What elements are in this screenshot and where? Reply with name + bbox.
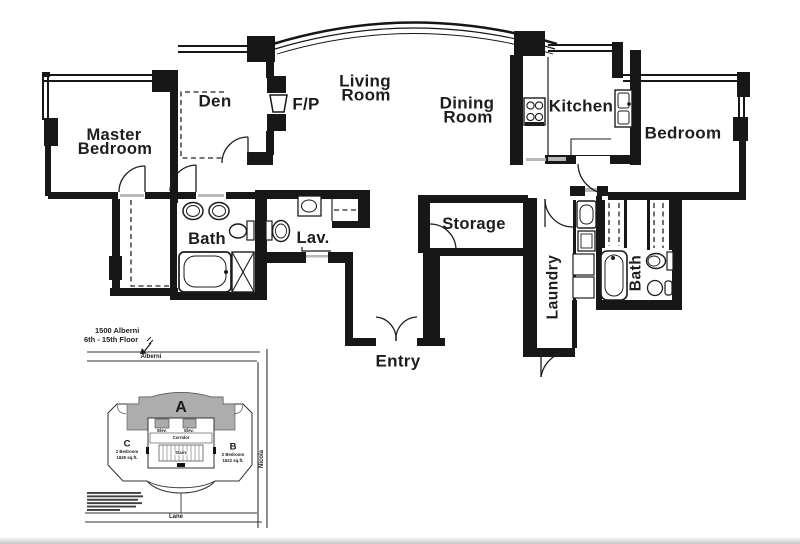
label-bedroom: Bedroom <box>645 125 722 142</box>
site-address-line2: 6th - 15th Floor <box>84 336 138 344</box>
page-edge-shadow <box>0 537 800 544</box>
label-dining-room-2: Room <box>443 109 492 126</box>
street-label-alberni: Alberni <box>139 354 164 360</box>
label-laundry: Laundry <box>545 255 561 320</box>
elevator-box-1 <box>155 419 169 428</box>
laundry-fixtures <box>573 201 596 298</box>
site-stairs-label: Stairs <box>174 451 188 455</box>
label-storage: Storage <box>442 216 506 233</box>
label-kitchen: Kitchen <box>549 98 613 115</box>
site-unit-c-label: C <box>124 439 131 449</box>
site-unit-c-area: 1626 sq.ft. <box>116 455 137 459</box>
floor-plan-sheet: Master Bedroom Den F/P Living Room Dinin… <box>0 0 800 544</box>
site-unit-b-area: 1622 sq.ft. <box>222 458 243 462</box>
fireplace-icon <box>270 95 287 112</box>
street-label-lane: Lane <box>167 514 185 520</box>
label-master-bedroom-2: Bedroom <box>78 141 153 158</box>
label-bath-right: Bath <box>628 255 644 291</box>
site-elev2-label: Elev. <box>184 429 193 433</box>
street-label-nicola: Nicola <box>259 448 265 470</box>
kitchen-door-gap <box>576 156 610 164</box>
site-corridor-label: Corridor <box>173 436 190 440</box>
elevator-box-2 <box>183 419 196 428</box>
site-elev1-label: Elev. <box>157 429 166 433</box>
label-living-room-2: Room <box>341 87 390 104</box>
floor-plan-drawing <box>0 0 800 544</box>
site-address-line1: 1500 Alberni <box>95 327 139 335</box>
label-den: Den <box>198 93 231 110</box>
label-bath-left: Bath <box>188 231 226 248</box>
site-plan <box>85 337 267 528</box>
site-unit-b-label: B <box>230 442 237 452</box>
walls <box>42 31 750 357</box>
label-entry: Entry <box>376 353 421 370</box>
label-lav: Lav. <box>297 230 330 247</box>
label-fireplace: F/P <box>292 96 319 113</box>
disclaimer-fine-print <box>87 492 143 511</box>
site-unit-a-label: A <box>175 400 187 416</box>
